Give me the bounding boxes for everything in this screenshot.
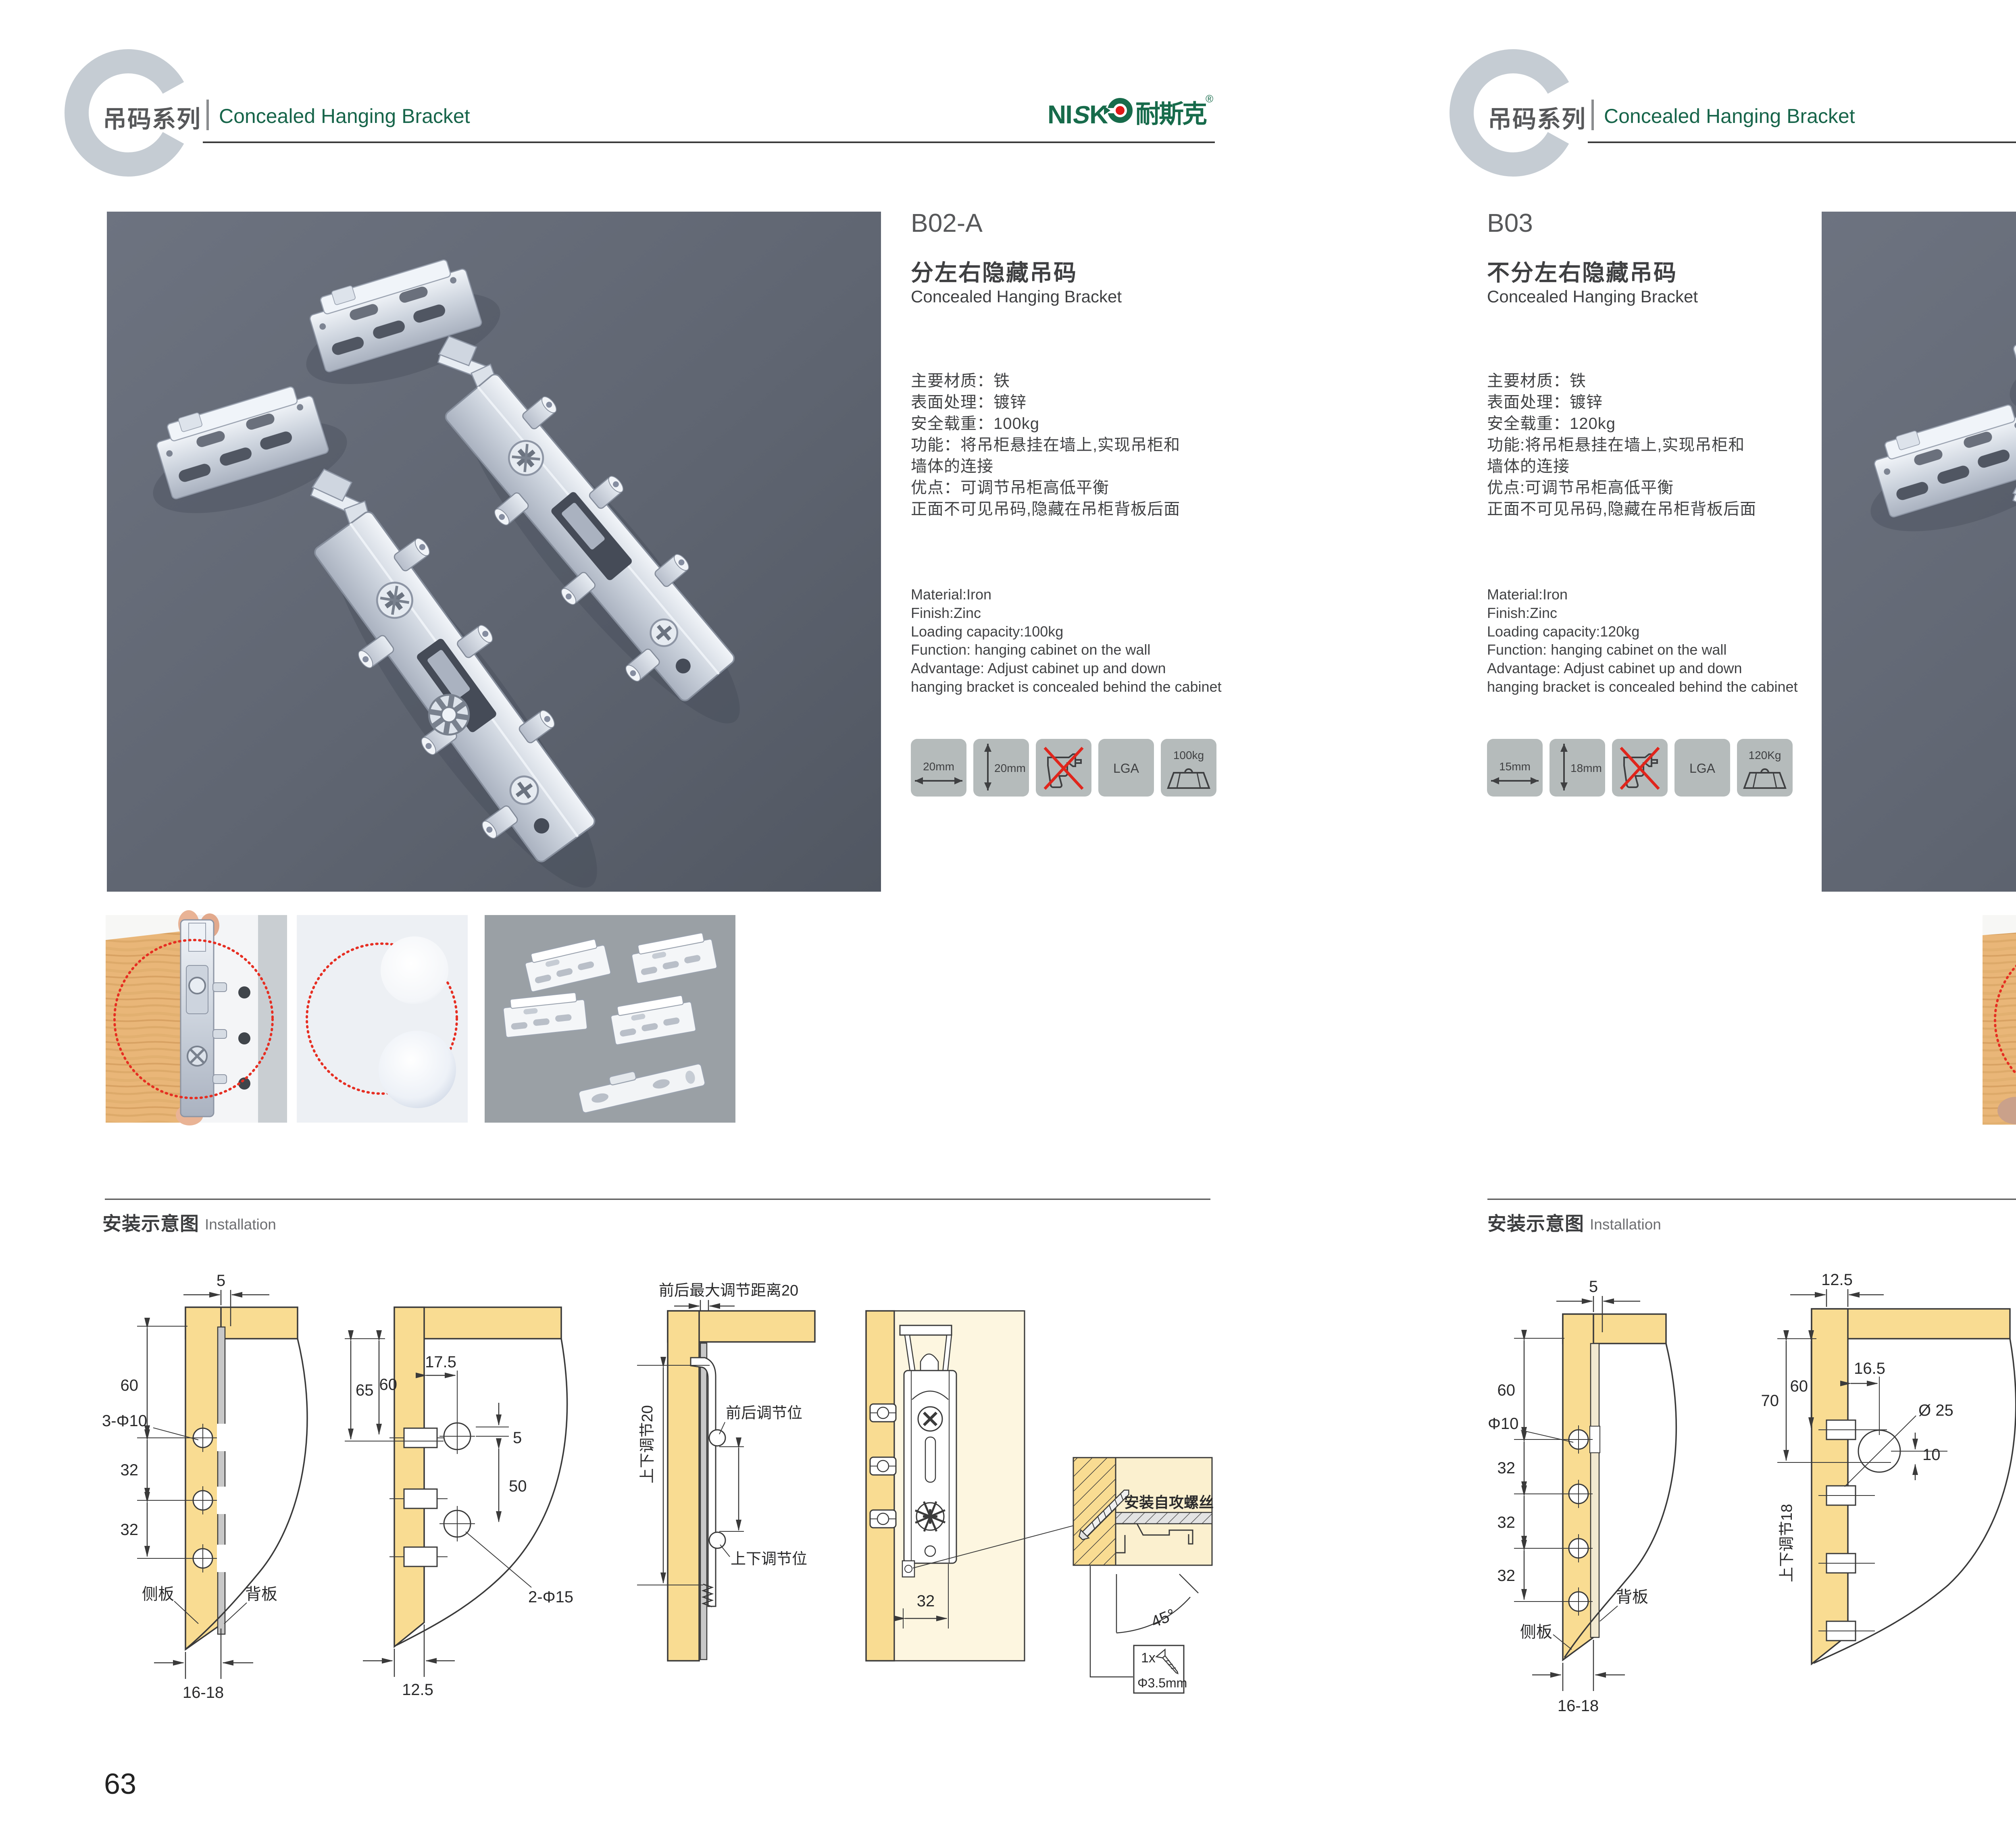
svg-text:Loading capacity:100kg: Loading capacity:100kg <box>911 623 1063 640</box>
svg-text:优点:可调节吊柜高低平衡: 优点:可调节吊柜高低平衡 <box>1487 479 1674 497</box>
svg-text:18mm: 18mm <box>1570 762 1602 774</box>
svg-text:上下调节20: 上下调节20 <box>639 1405 656 1483</box>
svg-text:5: 5 <box>1589 1278 1598 1296</box>
svg-text:B02-A: B02-A <box>911 208 983 237</box>
svg-text:上下调节位: 上下调节位 <box>731 1551 807 1568</box>
svg-text:20mm: 20mm <box>994 762 1026 774</box>
svg-text:12.5: 12.5 <box>1821 1271 1853 1289</box>
svg-text:Material:Iron: Material:Iron <box>911 586 991 603</box>
svg-text:®: ® <box>1206 93 1213 105</box>
svg-text:Installation: Installation <box>205 1216 276 1233</box>
svg-text:10: 10 <box>1922 1446 1941 1464</box>
svg-text:分左右隐藏吊码: 分左右隐藏吊码 <box>911 260 1077 285</box>
svg-text:安装示意图: 安装示意图 <box>102 1213 199 1234</box>
svg-text:65: 65 <box>356 1381 374 1399</box>
svg-text:B03: B03 <box>1487 208 1533 237</box>
svg-text:安装自攻螺丝: 安装自攻螺丝 <box>1124 1494 1214 1511</box>
svg-text:LGA: LGA <box>1689 761 1716 776</box>
svg-text:Loading capacity:120kg: Loading capacity:120kg <box>1487 623 1639 640</box>
svg-text:63: 63 <box>104 1768 136 1800</box>
svg-text:Advantage: Adjust cabinet up a: Advantage: Adjust cabinet up and down <box>1487 660 1742 676</box>
svg-text:主要材质：铁: 主要材质：铁 <box>911 372 1010 390</box>
svg-text:背板: 背板 <box>245 1585 277 1603</box>
svg-text:12.5: 12.5 <box>402 1681 433 1699</box>
svg-text:正面不可见吊码,隐藏在吊柜背板后面: 正面不可见吊码,隐藏在吊柜背板后面 <box>1487 500 1756 518</box>
svg-text:Function: hanging cabinet on t: Function: hanging cabinet on the wall <box>1487 641 1727 658</box>
svg-text:hanging bracket is concealed b: hanging bracket is concealed behind the … <box>911 678 1222 695</box>
svg-text:Finish:Zinc: Finish:Zinc <box>911 605 981 621</box>
svg-text:70: 70 <box>1761 1392 1779 1410</box>
svg-text:32: 32 <box>1497 1567 1516 1585</box>
svg-text:表面处理：镀锌: 表面处理：镀锌 <box>1487 393 1603 411</box>
svg-text:60: 60 <box>1790 1377 1808 1395</box>
svg-text:Concealed Hanging Bracket: Concealed Hanging Bracket <box>1604 105 1855 127</box>
svg-text:表面处理：镀锌: 表面处理：镀锌 <box>911 393 1027 411</box>
svg-text:hanging bracket is concealed b: hanging bracket is concealed behind the … <box>1487 678 1798 695</box>
svg-text:正面不可见吊码,隐藏在吊柜背板后面: 正面不可见吊码,隐藏在吊柜背板后面 <box>911 500 1180 518</box>
svg-text:优点：可调节吊柜高低平衡: 优点：可调节吊柜高低平衡 <box>911 479 1109 497</box>
svg-text:前后调节位: 前后调节位 <box>726 1405 802 1422</box>
svg-text:32: 32 <box>917 1592 935 1610</box>
svg-text:16-18: 16-18 <box>1558 1697 1599 1715</box>
svg-text:15mm: 15mm <box>1499 760 1531 773</box>
svg-text:K: K <box>1089 100 1108 129</box>
svg-text:墙体的连接: 墙体的连接 <box>911 458 993 475</box>
svg-text:Function: hanging cabinet on t: Function: hanging cabinet on the wall <box>911 641 1150 658</box>
svg-text:20mm: 20mm <box>923 760 954 773</box>
svg-text:60: 60 <box>121 1377 139 1394</box>
svg-text:16-18: 16-18 <box>183 1684 224 1701</box>
svg-text:1x: 1x <box>1141 1650 1156 1666</box>
svg-text:吊码系列: 吊码系列 <box>103 106 201 133</box>
svg-text:背板: 背板 <box>1616 1588 1648 1606</box>
svg-text:32: 32 <box>1497 1459 1516 1477</box>
svg-text:侧板: 侧板 <box>1520 1623 1552 1641</box>
svg-text:安全载重：120kg: 安全载重：120kg <box>1487 415 1616 433</box>
svg-text:功能：将吊柜悬挂在墙上,实现吊柜和: 功能：将吊柜悬挂在墙上,实现吊柜和 <box>911 436 1180 454</box>
svg-text:3-Φ10: 3-Φ10 <box>102 1412 147 1430</box>
svg-text:墙体的连接: 墙体的连接 <box>1487 458 1570 475</box>
svg-text:100kg: 100kg <box>1173 749 1204 761</box>
svg-text:17.5: 17.5 <box>425 1353 456 1371</box>
svg-text:32: 32 <box>121 1521 139 1539</box>
svg-text:5: 5 <box>513 1429 522 1447</box>
svg-text:耐斯克: 耐斯克 <box>1135 100 1207 128</box>
svg-text:Advantage: Adjust cabinet up a: Advantage: Adjust cabinet up and down <box>911 660 1166 676</box>
svg-text:前后最大调节距离20: 前后最大调节距离20 <box>659 1282 798 1299</box>
svg-text:Installation: Installation <box>1590 1216 1661 1233</box>
svg-text:Finish:Zinc: Finish:Zinc <box>1487 605 1557 621</box>
svg-text:16.5: 16.5 <box>1854 1360 1885 1377</box>
svg-text:120Kg: 120Kg <box>1749 749 1781 761</box>
svg-text:Ø 25: Ø 25 <box>1918 1402 1954 1419</box>
svg-text:LGA: LGA <box>1113 761 1139 776</box>
svg-text:Concealed Hanging Bracket: Concealed Hanging Bracket <box>1487 287 1698 306</box>
svg-text:Concealed Hanging Bracket: Concealed Hanging Bracket <box>219 105 470 127</box>
svg-text:Material:Iron: Material:Iron <box>1487 586 1568 603</box>
svg-text:吊码系列: 吊码系列 <box>1488 106 1586 133</box>
svg-text:60: 60 <box>1497 1381 1516 1399</box>
svg-text:侧板: 侧板 <box>142 1585 174 1603</box>
svg-text:Concealed Hanging Bracket: Concealed Hanging Bracket <box>911 287 1122 306</box>
svg-text:不分左右隐藏吊码: 不分左右隐藏吊码 <box>1487 260 1677 285</box>
svg-text:32: 32 <box>121 1461 139 1479</box>
svg-text:50: 50 <box>509 1477 527 1495</box>
svg-text:功能:将吊柜悬挂在墙上,实现吊柜和: 功能:将吊柜悬挂在墙上,实现吊柜和 <box>1487 436 1745 454</box>
svg-text:45°: 45° <box>1149 1606 1178 1631</box>
svg-text:安全载重：100kg: 安全载重：100kg <box>911 415 1039 433</box>
svg-text:Φ3.5mm: Φ3.5mm <box>1137 1676 1187 1690</box>
svg-text:主要材质：铁: 主要材质：铁 <box>1487 372 1586 390</box>
svg-text:2-Φ15: 2-Φ15 <box>528 1588 573 1606</box>
svg-text:上下调节18: 上下调节18 <box>1779 1504 1795 1582</box>
svg-text:60: 60 <box>379 1376 398 1394</box>
svg-text:安装示意图: 安装示意图 <box>1487 1213 1584 1234</box>
svg-text:Φ10: Φ10 <box>1488 1415 1518 1433</box>
svg-text:32: 32 <box>1497 1514 1516 1531</box>
svg-text:5: 5 <box>217 1272 225 1290</box>
svg-text:NI: NI <box>1048 100 1072 129</box>
